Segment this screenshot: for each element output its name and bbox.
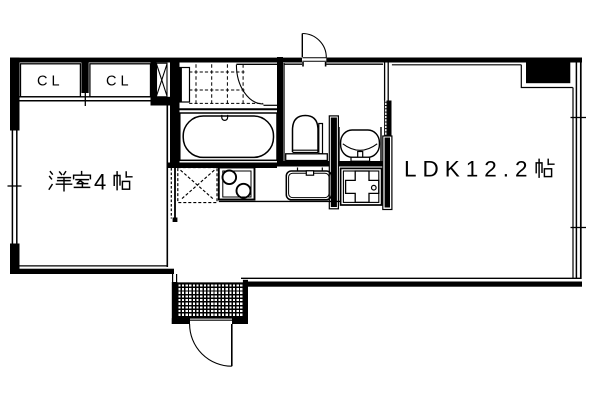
svg-text:CL: CL bbox=[37, 74, 64, 90]
svg-text:LDK12.2: LDK12.2 bbox=[404, 157, 534, 182]
svg-text:CL: CL bbox=[106, 74, 133, 90]
svg-text:4: 4 bbox=[94, 170, 106, 195]
